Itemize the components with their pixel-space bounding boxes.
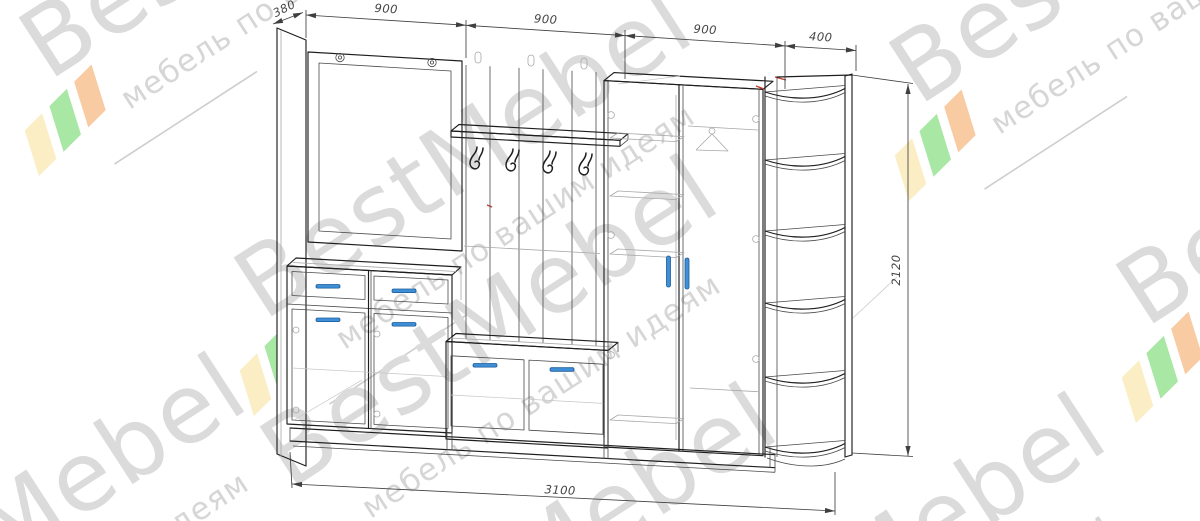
drawer-handle — [392, 289, 416, 293]
corner-shelf-unit — [765, 74, 852, 466]
drawing-canvas: BestMebel мебель по вашим идеям BestMebe… — [0, 0, 1200, 521]
dimension-label-total-width: 3100 — [544, 482, 576, 498]
wardrobe-handle — [667, 256, 671, 287]
watermark-tile: BestMebel мебель по вашим идеям — [820, 0, 1200, 227]
dimension-label-section3: 900 — [693, 22, 717, 37]
dimension-label-section2: 900 — [534, 11, 558, 26]
drawer-handle — [316, 285, 340, 289]
wardrobe-handle — [685, 258, 689, 289]
dimension-label-height: 2120 — [889, 254, 903, 285]
bench-door-handle — [550, 368, 574, 372]
dimension-height: 2120 — [852, 75, 913, 457]
dimension-label-section4: 400 — [809, 29, 833, 44]
bench-door-handle — [473, 364, 497, 368]
hallway-furniture-technical-drawing: BestMebel мебель по вашим идеям BestMebe… — [0, 0, 1200, 521]
dimension-label-section1: 900 — [374, 1, 398, 16]
door-handle — [316, 318, 340, 322]
door-handle — [392, 323, 416, 327]
